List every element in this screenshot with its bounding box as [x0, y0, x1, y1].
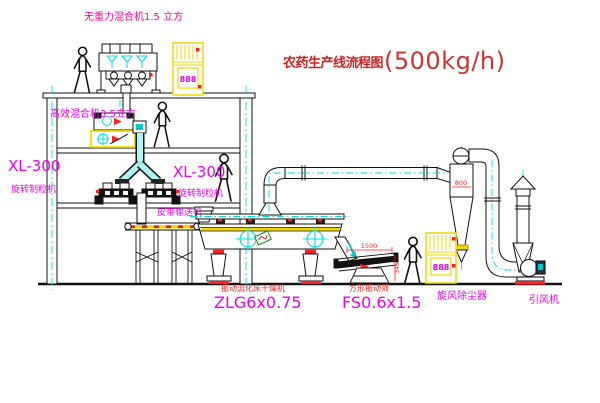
belt-conveyor	[125, 223, 200, 283]
label-gravity-free-mixer: 无重力混合机1.5 立方	[84, 13, 183, 23]
discharge-chute	[137, 193, 146, 224]
title-text: 农药生产线流程图	[283, 52, 383, 71]
sieve-width-dimension: 1500	[361, 242, 378, 250]
control-cabinet-right: 888	[426, 233, 456, 283]
label-sieve-name: 方形振动筛	[349, 285, 389, 293]
cabinet-right-display: 888	[433, 263, 450, 272]
granulator-left	[95, 183, 137, 204]
cabinet-top-display: 888	[180, 75, 197, 84]
label-granulator-mid: 旋转制粒机	[178, 190, 223, 199]
fluid-bed-dryer	[190, 207, 357, 284]
label-xl300-left: XL-300	[8, 159, 60, 174]
label-dryer-model: ZLG6x0.75	[214, 295, 302, 311]
label-sieve-model: FS0.6x1.5	[342, 295, 421, 311]
control-cabinet-top: 888	[173, 43, 203, 95]
person-roof	[74, 47, 90, 92]
label-fan: 引风机	[529, 296, 559, 306]
label-belt-conveyor: 皮带输送机	[157, 209, 202, 218]
label-cyclone: 旋风除尘器	[437, 292, 487, 302]
title-capacity: (500kg/h)	[384, 47, 505, 75]
exhaust-duct	[259, 166, 452, 216]
label-granulator-left: 旋转制粒机	[11, 186, 56, 195]
cyclone-dimension: 800	[455, 179, 467, 187]
label-high-eff-mixer: 高效混合机3.5立方	[50, 110, 136, 120]
label-dryer-name: 振动流化床干燥机	[221, 285, 285, 293]
gravity-free-mixer	[97, 44, 160, 114]
label-xl300-mid: XL-300	[173, 165, 225, 180]
drawing-title: 农药生产线流程图 (500kg/h)	[283, 47, 505, 75]
cad-flow-diagram: 888	[0, 0, 600, 403]
sieve-height-dimension: 345	[394, 262, 401, 274]
person-top-floor	[154, 102, 170, 146]
person-ground	[405, 237, 422, 284]
